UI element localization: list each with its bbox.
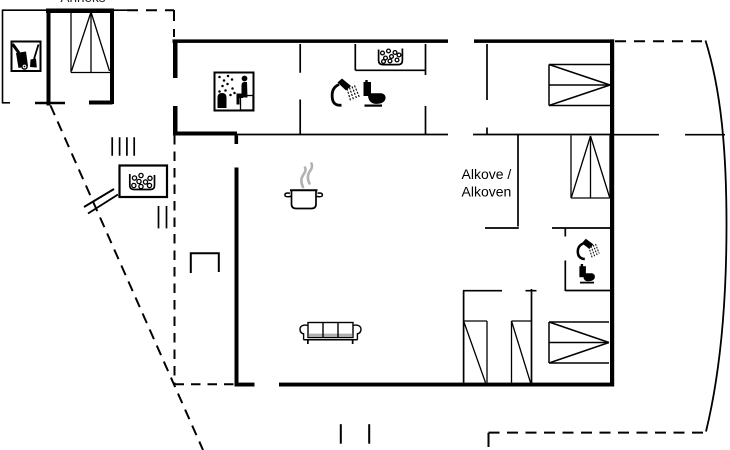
svg-text:Alkoven: Alkoven — [462, 183, 512, 199]
svg-text:Anneks: Anneks — [60, 0, 105, 5]
svg-text:Alkove /: Alkove / — [462, 166, 512, 182]
